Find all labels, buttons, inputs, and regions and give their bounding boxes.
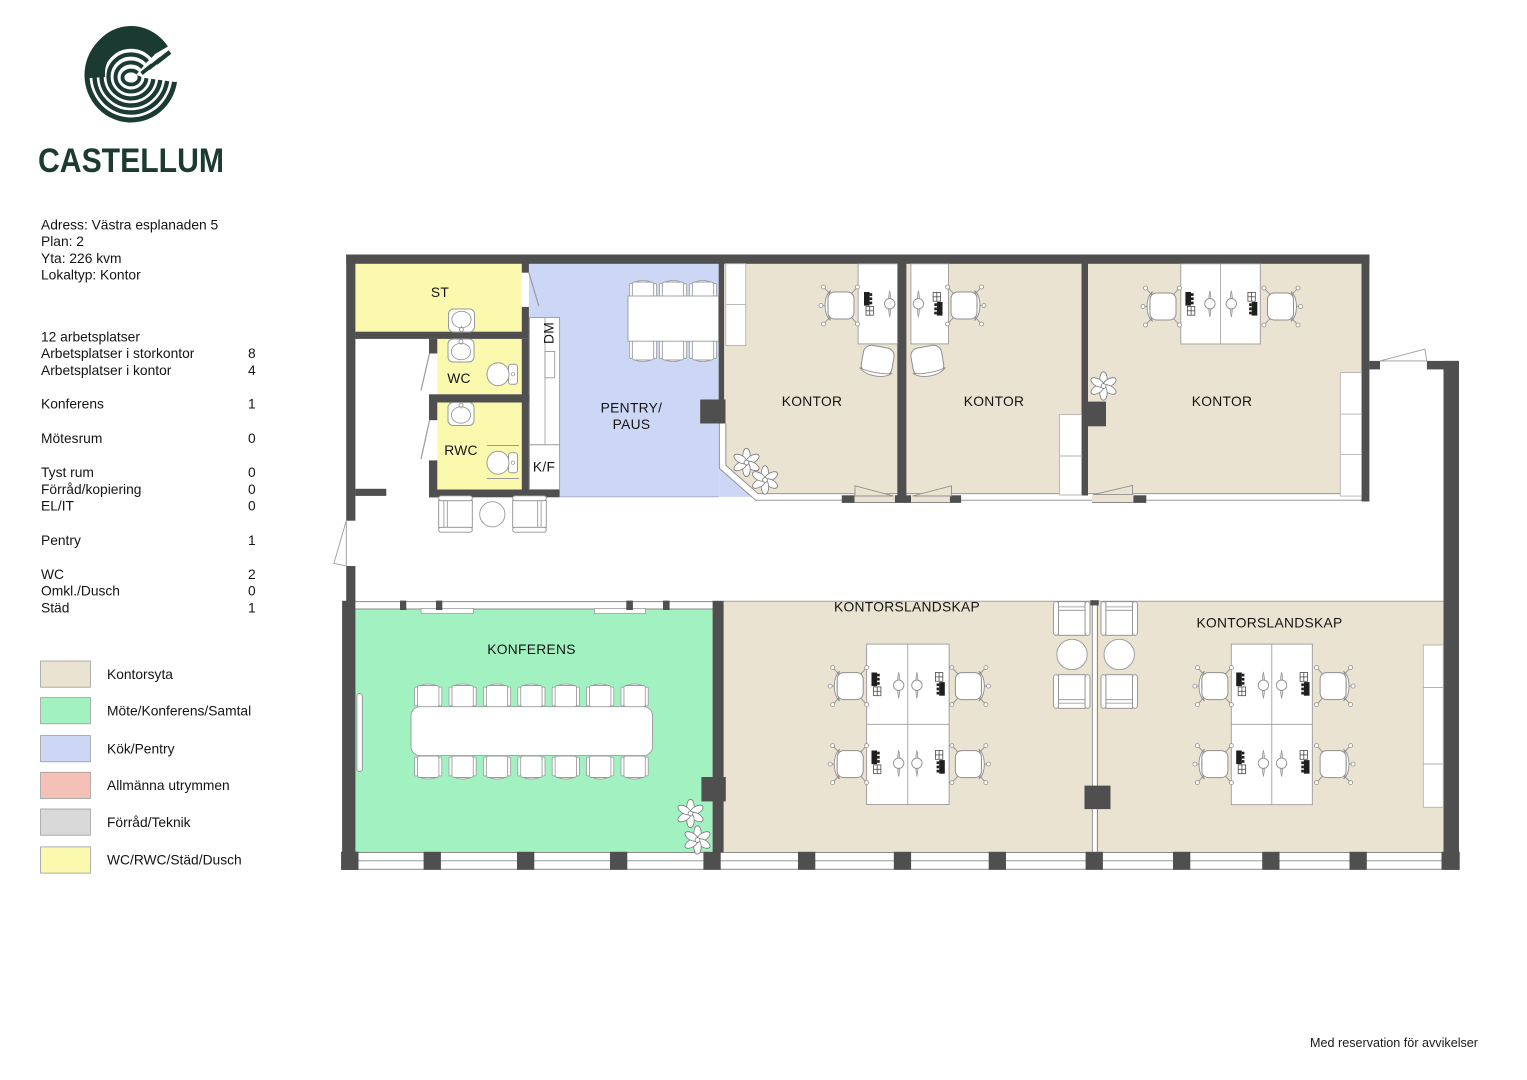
svg-text:DM: DM <box>542 322 557 344</box>
svg-text:0: 0 <box>248 431 256 446</box>
svg-text:8: 8 <box>248 346 256 361</box>
svg-text:Konferens: Konferens <box>41 396 104 411</box>
svg-text:PENTRY/: PENTRY/ <box>601 401 663 416</box>
svg-text:Omkl./Dusch: Omkl./Dusch <box>41 584 120 599</box>
svg-text:Arbetsplatser i storkontor: Arbetsplatser i storkontor <box>41 346 195 361</box>
svg-text:Arbetsplatser i kontor: Arbetsplatser i kontor <box>41 363 172 378</box>
svg-text:1: 1 <box>248 533 256 548</box>
svg-text:Förråd/kopiering: Förråd/kopiering <box>41 482 141 497</box>
svg-text:0: 0 <box>248 499 256 514</box>
svg-text:KONTOR: KONTOR <box>964 394 1025 409</box>
svg-text:0: 0 <box>248 482 256 497</box>
svg-text:Med reservation för avvikelser: Med reservation för avvikelser <box>1310 1036 1478 1050</box>
svg-text:ST: ST <box>431 285 450 300</box>
svg-text:WC: WC <box>447 371 471 386</box>
svg-text:Kontorsyta: Kontorsyta <box>107 667 173 682</box>
svg-text:0: 0 <box>248 465 256 480</box>
svg-text:Yta: 226 kvm: Yta: 226 kvm <box>41 251 122 266</box>
svg-text:K/F: K/F <box>533 460 555 475</box>
svg-text:1: 1 <box>248 600 256 615</box>
svg-text:1: 1 <box>248 396 256 411</box>
svg-text:0: 0 <box>248 584 256 599</box>
svg-text:KONTOR: KONTOR <box>1192 394 1253 409</box>
svg-text:PAUS: PAUS <box>613 417 651 432</box>
svg-text:Plan: 2: Plan: 2 <box>41 234 84 249</box>
svg-text:Städ: Städ <box>41 600 69 615</box>
svg-text:Mötesrum: Mötesrum <box>41 431 102 446</box>
svg-text:WC: WC <box>41 567 64 582</box>
svg-text:KONFERENS: KONFERENS <box>487 642 576 657</box>
svg-text:CASTELLUM: CASTELLUM <box>38 142 224 180</box>
svg-text:Förråd/Teknik: Förråd/Teknik <box>107 815 191 830</box>
svg-text:KONTOR: KONTOR <box>782 394 843 409</box>
svg-text:KONTORSLANDSKAP: KONTORSLANDSKAP <box>1196 616 1342 631</box>
svg-text:Lokaltyp: Kontor: Lokaltyp: Kontor <box>41 268 141 283</box>
svg-text:WC/RWC/Städ/Dusch: WC/RWC/Städ/Dusch <box>107 853 242 868</box>
svg-text:Allmänna utrymmen: Allmänna utrymmen <box>107 778 230 793</box>
svg-text:EL/IT: EL/IT <box>41 499 75 514</box>
svg-text:Adress: Västra esplanaden 5: Adress: Västra esplanaden 5 <box>41 218 218 233</box>
svg-text:4: 4 <box>248 363 256 378</box>
svg-text:12 arbetsplatser: 12 arbetsplatser <box>41 330 140 345</box>
svg-text:Kök/Pentry: Kök/Pentry <box>107 741 175 756</box>
svg-text:2: 2 <box>248 567 256 582</box>
svg-text:KONTORSLANDSKAP: KONTORSLANDSKAP <box>834 600 980 615</box>
svg-text:Tyst rum: Tyst rum <box>41 465 94 480</box>
svg-text:RWC: RWC <box>444 443 478 458</box>
svg-text:Möte/Konferens/Samtal: Möte/Konferens/Samtal <box>107 703 251 718</box>
svg-text:Pentry: Pentry <box>41 533 81 548</box>
